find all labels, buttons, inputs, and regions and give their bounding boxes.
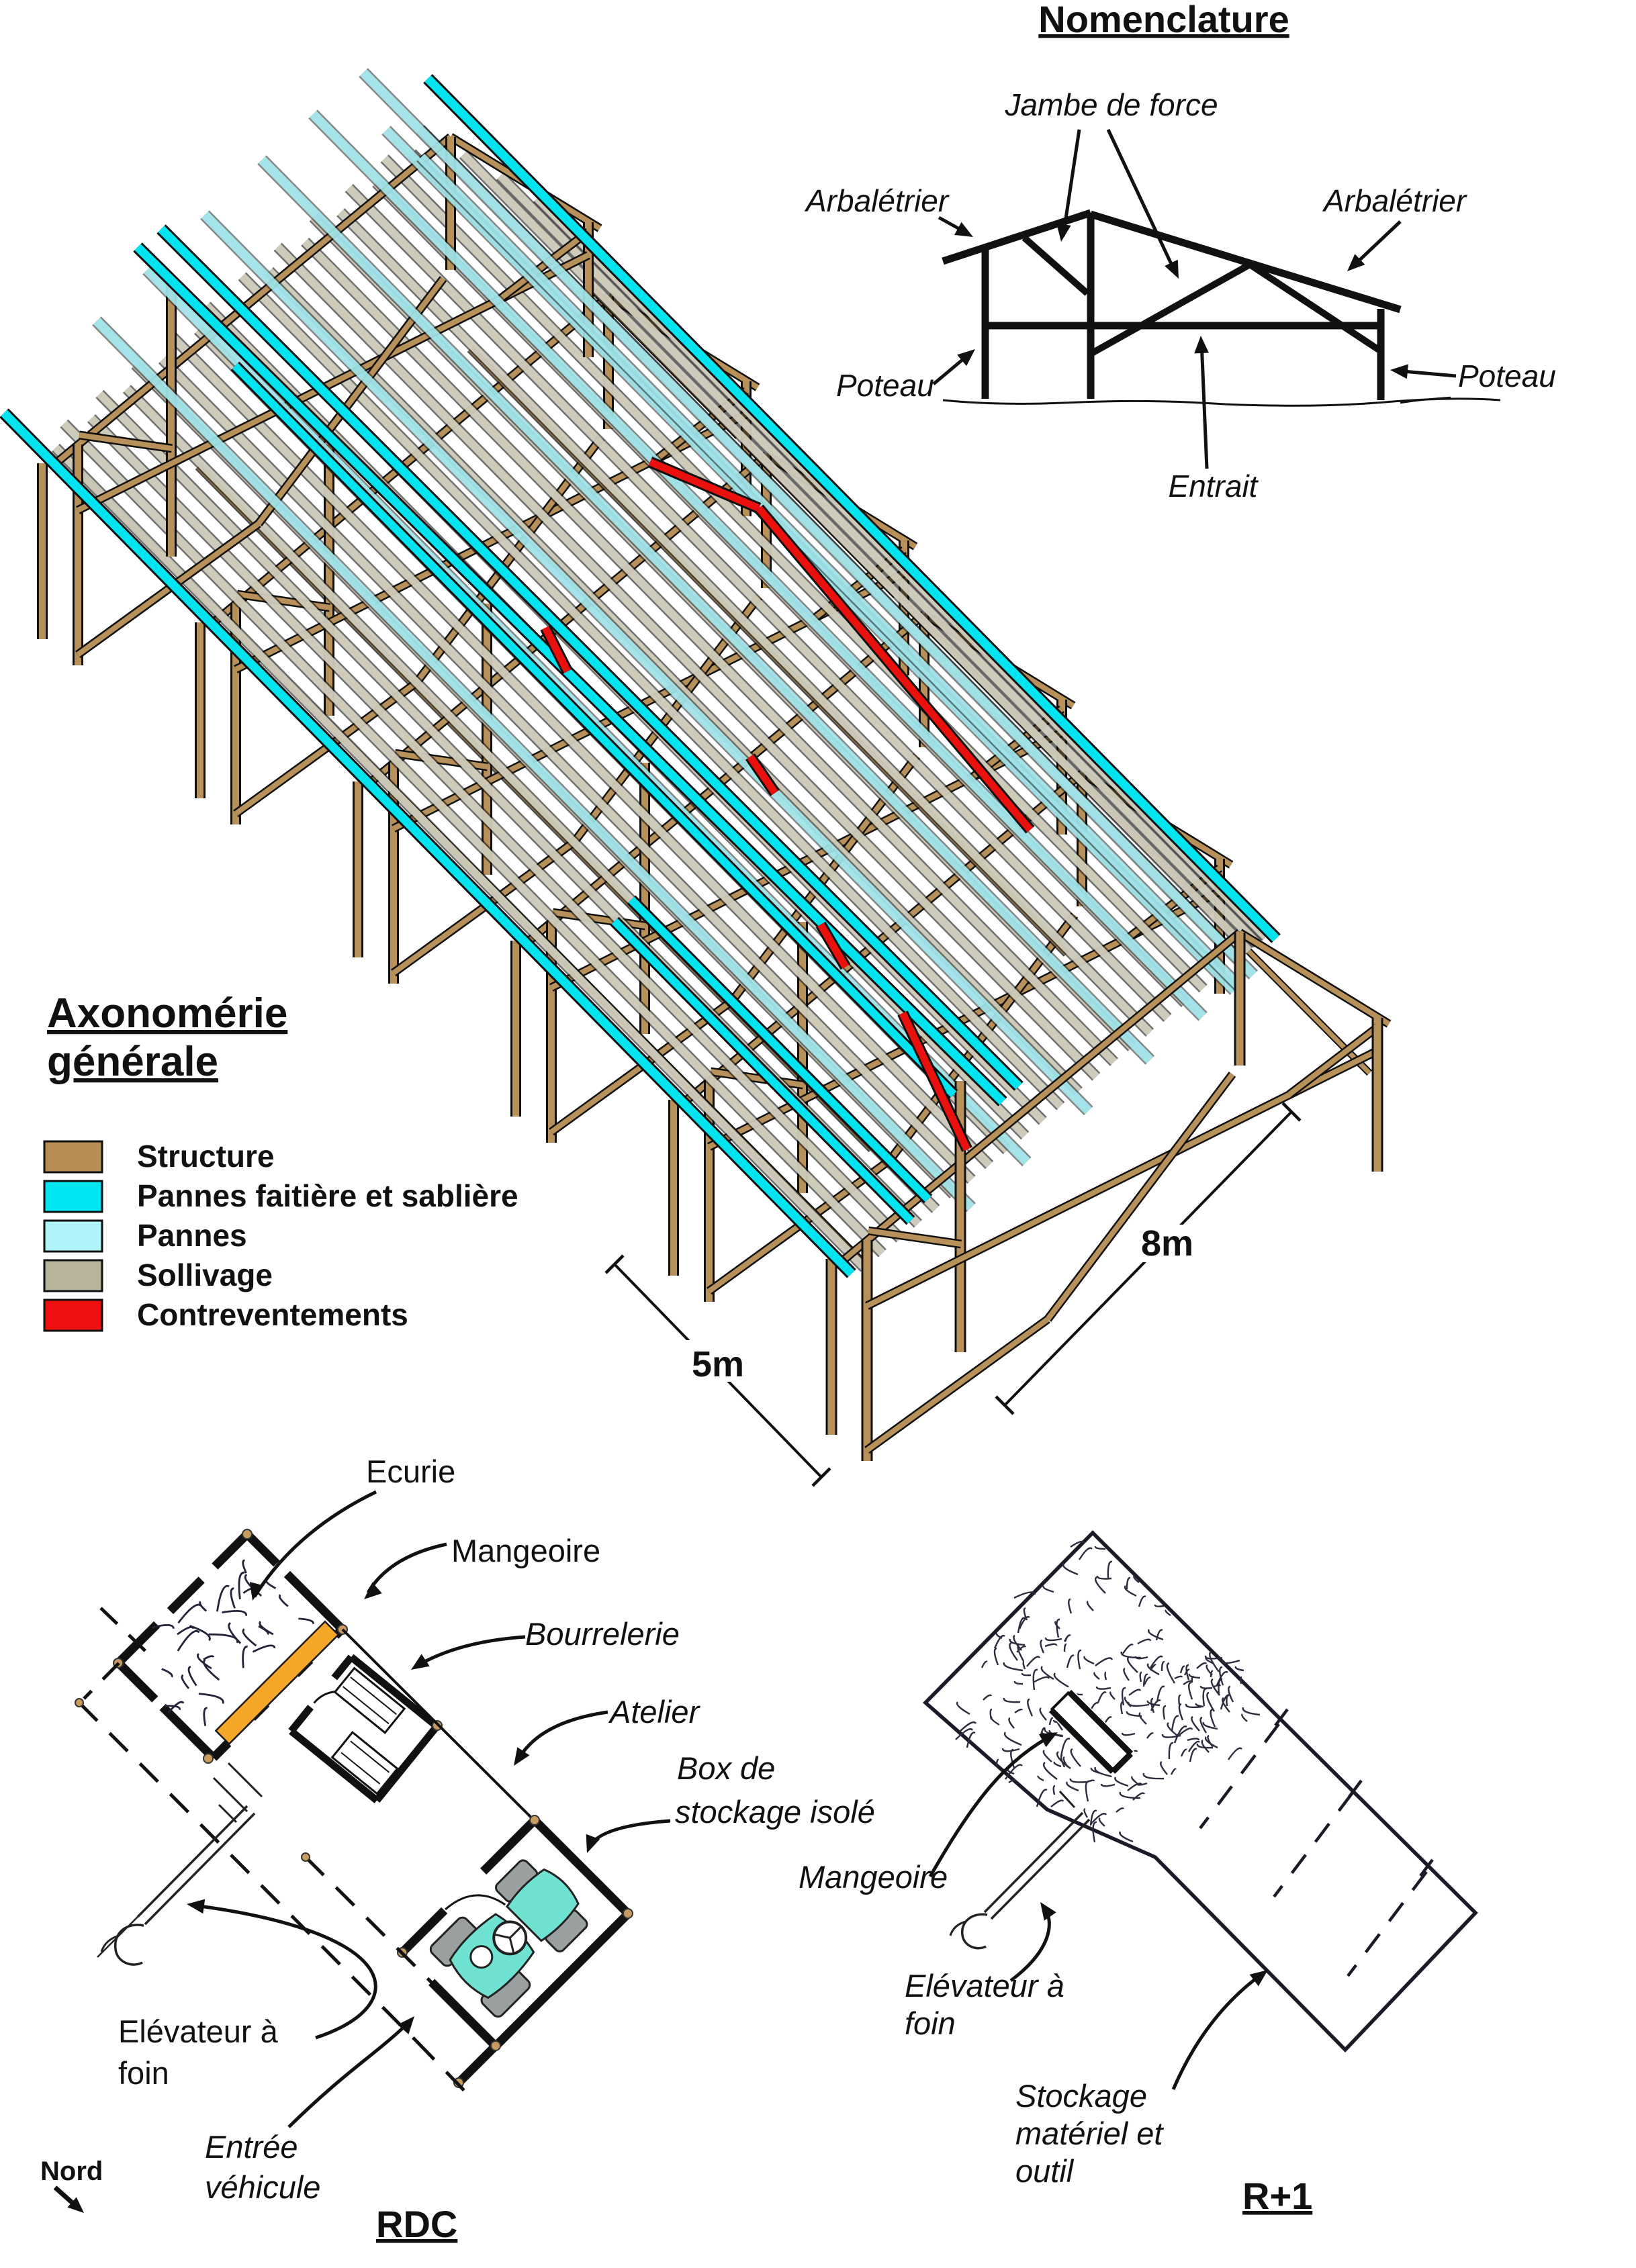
svg-text:Poteau: Poteau (1458, 359, 1556, 393)
svg-text:Stockage: Stockage (1015, 2078, 1147, 2114)
svg-text:matériel et: matériel et (1015, 2116, 1164, 2151)
svg-text:RDC: RDC (376, 2203, 457, 2245)
svg-text:R+1: R+1 (1242, 2175, 1312, 2217)
svg-text:outil: outil (1015, 2153, 1075, 2189)
svg-text:Box de: Box de (677, 1750, 775, 1786)
svg-text:Entrait: Entrait (1169, 469, 1259, 504)
svg-text:Structure: Structure (137, 1139, 274, 1174)
svg-text:Entrée: Entrée (205, 2129, 298, 2165)
svg-text:Jambe de force: Jambe de force (1004, 87, 1218, 122)
svg-text:Nomenclature: Nomenclature (1038, 0, 1289, 40)
svg-text:Axonomérie: Axonomérie (47, 990, 287, 1037)
svg-text:véhicule: véhicule (205, 2169, 320, 2205)
svg-text:Ecurie: Ecurie (366, 1454, 455, 1489)
svg-text:Poteau: Poteau (836, 368, 934, 403)
svg-text:Mangeoire: Mangeoire (799, 1859, 948, 1895)
svg-text:foin: foin (905, 2005, 956, 2041)
svg-text:Arbalétrier: Arbalétrier (1322, 183, 1467, 218)
svg-text:stockage isolé: stockage isolé (675, 1794, 875, 1830)
svg-text:Arbalétrier: Arbalétrier (804, 183, 950, 218)
svg-text:générale: générale (47, 1039, 218, 1085)
svg-text:Pannes faitière et sablière: Pannes faitière et sablière (137, 1178, 518, 1213)
svg-text:5m: 5m (692, 1344, 744, 1384)
svg-text:Atelier: Atelier (608, 1694, 701, 1730)
svg-text:Nord: Nord (40, 2157, 103, 2186)
svg-text:foin: foin (118, 2055, 169, 2091)
svg-text:Elévateur à: Elévateur à (118, 2014, 279, 2049)
svg-text:Pannes: Pannes (137, 1218, 247, 1253)
svg-text:Bourrelerie: Bourrelerie (525, 1616, 680, 1652)
svg-text:Mangeoire: Mangeoire (451, 1533, 600, 1568)
svg-text:8m: 8m (1141, 1223, 1193, 1264)
svg-text:Elévateur à: Elévateur à (905, 1968, 1064, 2003)
svg-text:Sollivage: Sollivage (137, 1258, 273, 1292)
svg-text:Contreventements: Contreventements (137, 1297, 408, 1332)
